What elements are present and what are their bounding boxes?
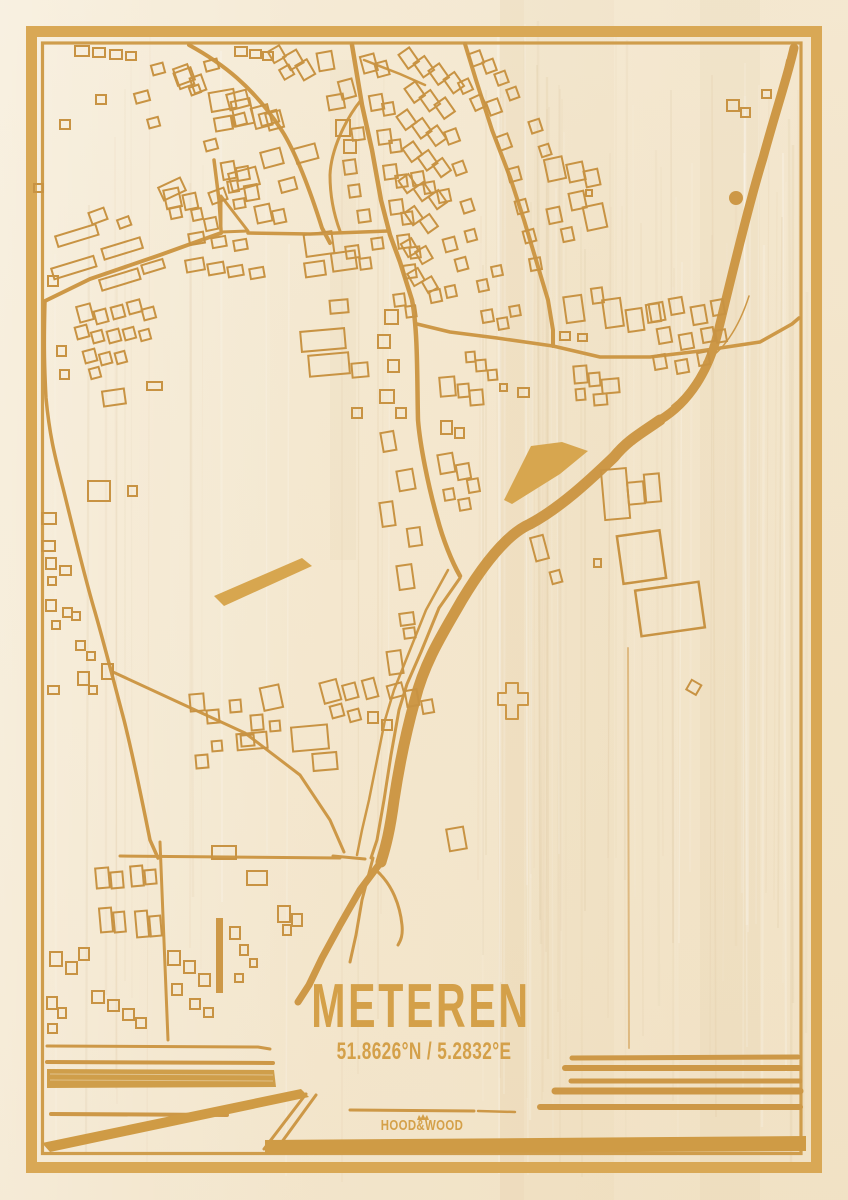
svg-text:METEREN: METEREN — [311, 972, 531, 1042]
svg-text:HOOD&WOOD: HOOD&WOOD — [381, 1116, 464, 1133]
svg-text:51.8626°N / 5.2832°E: 51.8626°N / 5.2832°E — [337, 1038, 512, 1064]
